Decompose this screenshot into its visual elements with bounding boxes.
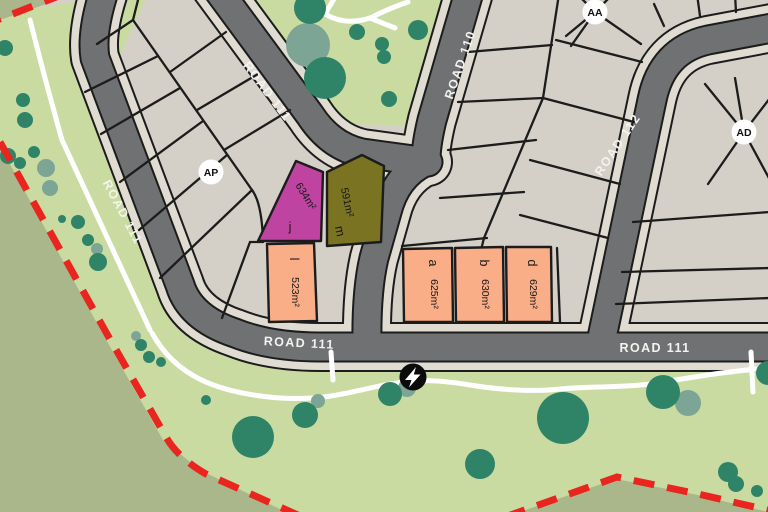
marker-AP-label: AP [204, 167, 219, 179]
marker-AA-label: AA [587, 7, 603, 19]
marker-AP[interactable]: AP [199, 160, 224, 185]
lot-a-area: 625m² [428, 279, 440, 309]
road-label-111-south-right: ROAD 111 [620, 341, 691, 355]
power-bolt-icon[interactable] [400, 364, 427, 391]
marker-AD[interactable]: AD [732, 120, 757, 145]
lot-j-letter: j [288, 220, 292, 234]
lot-l-area: 523m² [289, 277, 301, 307]
path-stub-left [331, 352, 333, 380]
lot-b-area: 630m² [479, 279, 491, 309]
estate-map: 634m² j 591m² m l 523m² a 625m² b 630m² … [0, 0, 768, 512]
marker-AD-label: AD [736, 127, 752, 139]
lot-l-letter: l [287, 258, 301, 261]
map-canvas: 634m² j 591m² m l 523m² a 625m² b 630m² … [0, 0, 768, 512]
lot-d-area: 629m² [527, 279, 539, 309]
path-stub-right [751, 352, 753, 392]
lot-b-letter: b [477, 260, 491, 267]
lot-d-letter: d [525, 260, 539, 267]
lot-a-letter: a [426, 260, 440, 267]
marker-AA[interactable]: AA [583, 0, 608, 25]
